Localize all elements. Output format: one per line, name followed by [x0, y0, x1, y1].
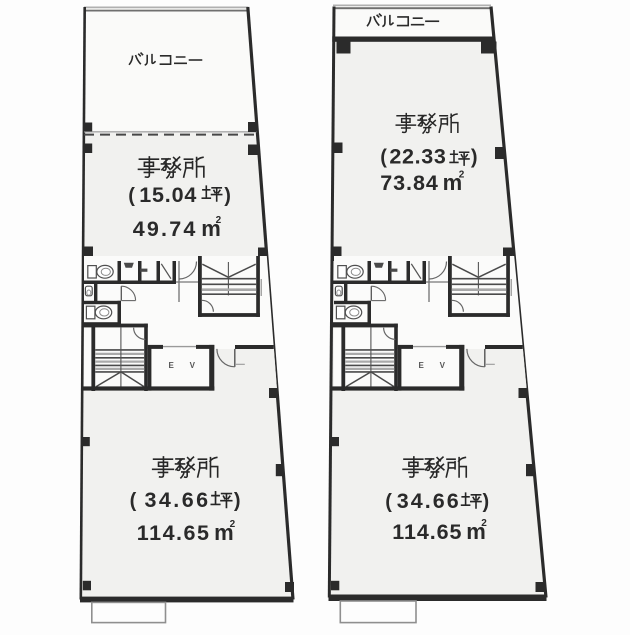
svg-text:): )	[471, 147, 478, 169]
svg-text:): )	[234, 490, 241, 512]
svg-text:22.33: 22.33	[389, 145, 446, 169]
svg-text:(: (	[380, 147, 387, 169]
svg-text:34.66: 34.66	[145, 488, 209, 512]
svg-text:V: V	[440, 361, 446, 370]
svg-text:114.65: 114.65	[392, 520, 461, 544]
svg-text:73.84: 73.84	[380, 171, 438, 195]
svg-text:(: (	[128, 185, 135, 207]
svg-text:): )	[483, 491, 490, 513]
svg-text:E: E	[419, 361, 425, 370]
svg-text:2: 2	[230, 519, 236, 530]
svg-text:(: (	[385, 491, 392, 513]
svg-text:2: 2	[216, 215, 222, 226]
svg-text:(: (	[130, 490, 137, 512]
svg-text:34.66: 34.66	[397, 489, 459, 513]
svg-text:E: E	[169, 361, 175, 370]
svg-text:2: 2	[481, 518, 487, 529]
svg-text:15.04: 15.04	[139, 183, 196, 207]
svg-text:49.74: 49.74	[133, 217, 196, 241]
svg-text:V: V	[190, 361, 196, 370]
svg-text:2: 2	[459, 170, 465, 181]
svg-text:): )	[224, 185, 231, 207]
